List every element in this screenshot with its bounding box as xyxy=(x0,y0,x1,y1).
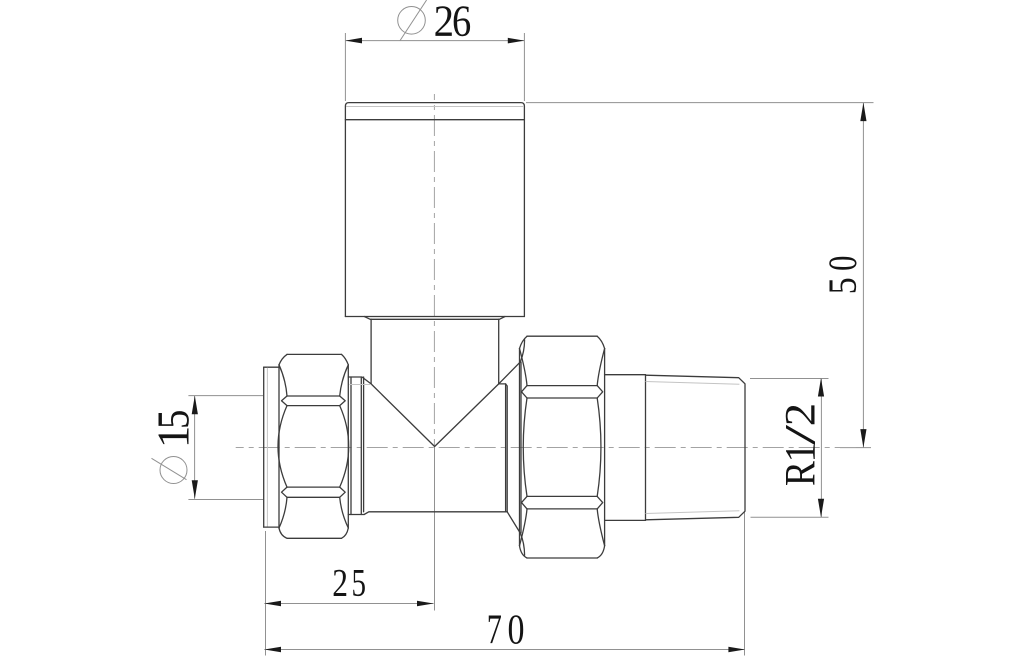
svg-text:/: / xyxy=(776,424,823,445)
svg-text:R: R xyxy=(776,461,824,486)
svg-text:1: 1 xyxy=(776,443,824,463)
svg-text:6: 6 xyxy=(452,0,471,46)
svg-text:5: 5 xyxy=(150,410,199,429)
svg-text:0: 0 xyxy=(820,256,865,271)
svg-text:2: 2 xyxy=(776,403,824,426)
svg-text:0: 0 xyxy=(507,607,524,653)
svg-text:2: 2 xyxy=(434,0,454,46)
svg-text:2: 2 xyxy=(332,560,348,604)
svg-text:5: 5 xyxy=(822,277,866,294)
svg-text:5: 5 xyxy=(352,561,367,604)
svg-text:7: 7 xyxy=(487,606,502,653)
